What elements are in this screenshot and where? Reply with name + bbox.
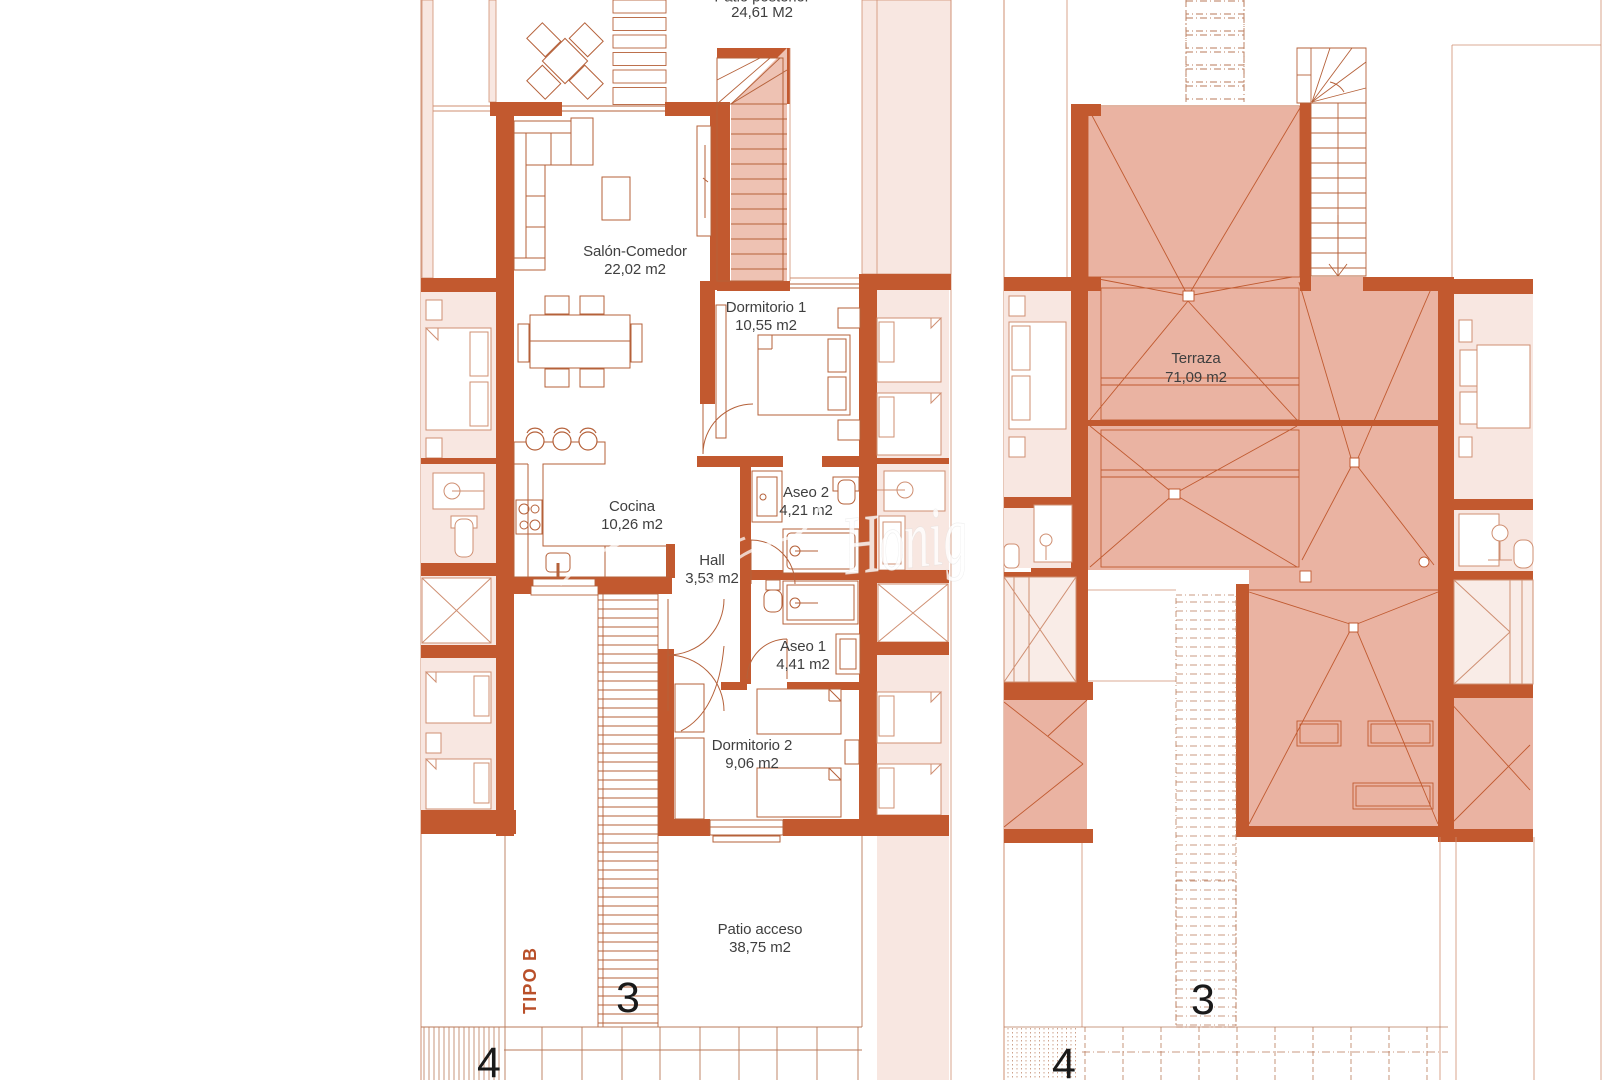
svg-text:Honig: Honig — [837, 488, 972, 594]
svg-text:24,61 M2: 24,61 M2 — [731, 4, 793, 21]
svg-text:9,06 m2: 9,06 m2 — [725, 755, 779, 772]
svg-text:38,75 m2: 38,75 m2 — [729, 939, 791, 956]
svg-text:10,26 m2: 10,26 m2 — [601, 516, 663, 533]
svg-text:Dormitorio 2: Dormitorio 2 — [712, 737, 793, 754]
svg-text:3: 3 — [1191, 976, 1215, 1024]
svg-text:22,02 m2: 22,02 m2 — [604, 261, 666, 278]
svg-text:Hall: Hall — [699, 552, 724, 569]
svg-text:4: 4 — [1052, 1040, 1076, 1080]
svg-text:4: 4 — [477, 1039, 501, 1080]
svg-text:4,41 m2: 4,41 m2 — [776, 656, 830, 673]
svg-text:Cocina: Cocina — [609, 498, 656, 515]
svg-text:71,09 m2: 71,09 m2 — [1165, 369, 1227, 386]
svg-text:4,21 m2: 4,21 m2 — [779, 502, 833, 519]
svg-text:Aseo 2: Aseo 2 — [783, 484, 829, 501]
svg-text:Patio acceso: Patio acceso — [718, 921, 803, 938]
svg-text:3: 3 — [616, 974, 640, 1022]
svg-text:Terraza: Terraza — [1171, 350, 1221, 367]
svg-text:Dormitorio 1: Dormitorio 1 — [726, 299, 807, 316]
svg-text:Salón-Comedor: Salón-Comedor — [583, 243, 687, 260]
svg-text:10,55 m2: 10,55 m2 — [735, 317, 797, 334]
svg-text:3,53 m2: 3,53 m2 — [685, 570, 739, 587]
svg-text:Aseo 1: Aseo 1 — [780, 638, 826, 655]
svg-text:TIPO B: TIPO B — [520, 947, 540, 1014]
